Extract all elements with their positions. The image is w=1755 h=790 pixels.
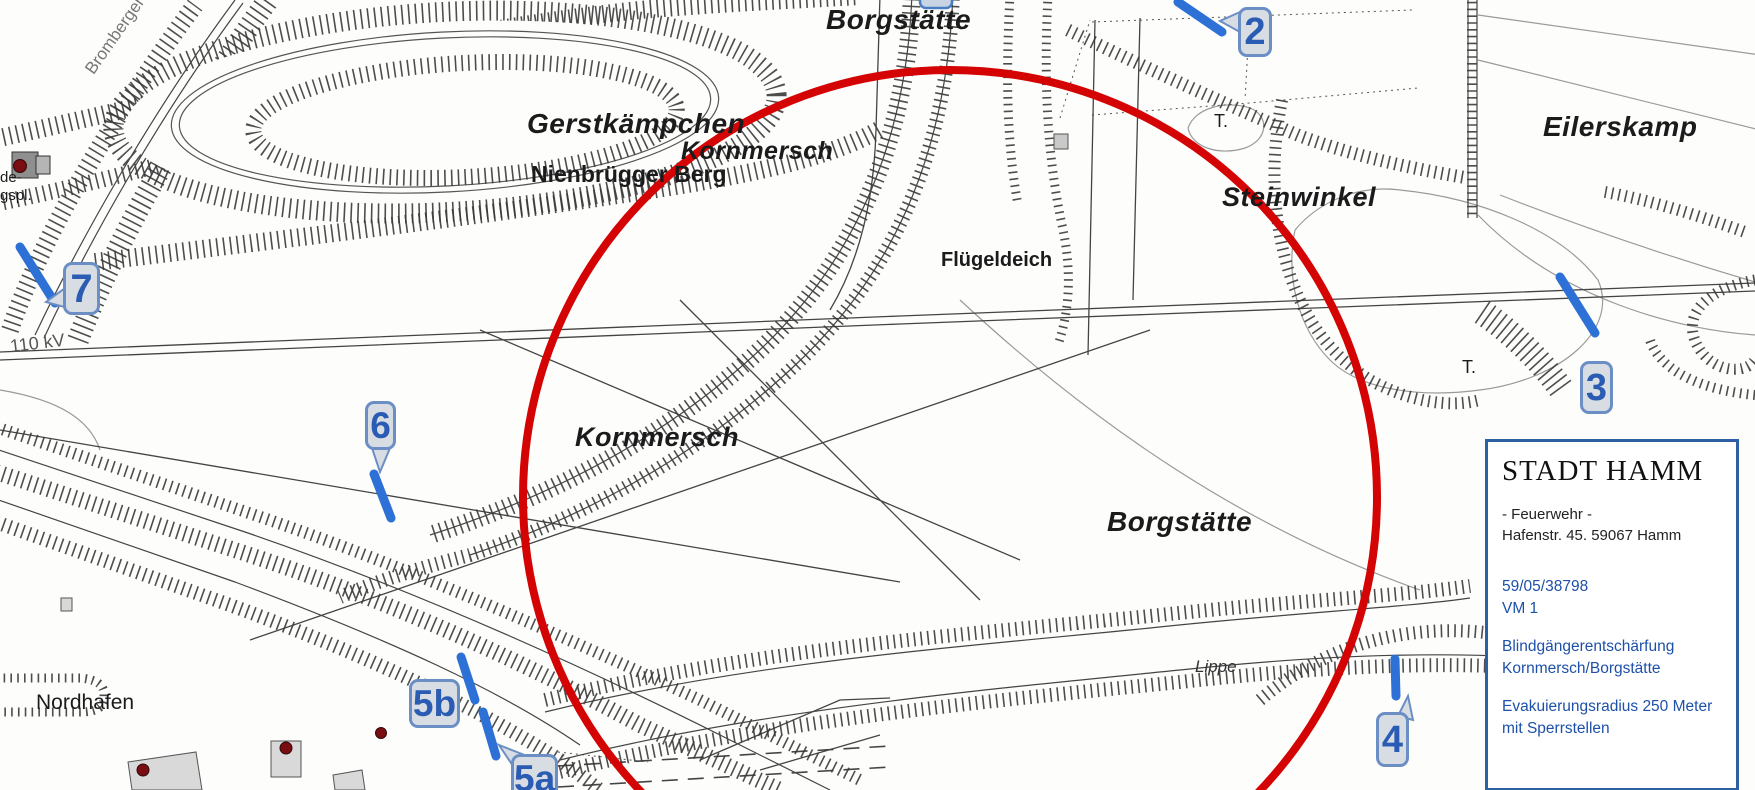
info-unit: VM 1 <box>1502 598 1722 620</box>
barrier-badge-3: 3 <box>1580 361 1613 414</box>
barrier-badge-2: 2 <box>1238 7 1272 57</box>
map-stage: Borgstätte Gerstkämpchen Kornmersch Nien… <box>0 0 1755 790</box>
info-case-number: 59/05/38798 <box>1502 576 1722 598</box>
label-fluegeldeich: Flügeldeich <box>941 250 1052 270</box>
label-eilerskamp: Eilerskamp <box>1543 113 1697 141</box>
info-address: Hafenstr. 45. 59067 Hamm <box>1502 525 1722 546</box>
info-title: STADT HAMM <box>1502 455 1722 488</box>
label-t-2: T. <box>1462 358 1476 376</box>
info-org: - Feuerwehr - <box>1502 504 1722 525</box>
building-marker-dot <box>280 742 292 754</box>
barrier-line-5a <box>483 712 496 756</box>
info-radius-2: mit Sperrstellen <box>1502 718 1722 740</box>
barrier-badge-5b: 5b <box>409 679 460 728</box>
label-borgstaette-mid: Borgstätte <box>1107 508 1252 536</box>
barrier-line-2 <box>1178 2 1222 32</box>
building-marker-dot <box>137 764 149 776</box>
info-operation-2: Kornmersch/Borgstätte <box>1502 658 1722 680</box>
barrier-badge-6: 6 <box>365 401 396 450</box>
label-t-1: T. <box>1214 112 1228 130</box>
label-fragment-de: de- <box>0 170 22 185</box>
info-box: STADT HAMM - Feuerwehr - Hafenstr. 45. 5… <box>1485 439 1739 790</box>
label-lippe: Lippe <box>1195 658 1237 675</box>
barrier-line-4 <box>1395 659 1396 696</box>
barrier-badge-7: 7 <box>63 262 100 315</box>
label-nordhafen: Nordhafen <box>36 692 134 713</box>
barrier-line-3 <box>1560 277 1595 333</box>
label-nienbruegger-berg: Nienbrügger Berg <box>531 163 727 186</box>
info-radius-1: Evakuierungsradius 250 Meter <box>1502 696 1722 718</box>
barrier-badge-4: 4 <box>1376 712 1409 767</box>
info-operation-1: Blindgängerentschärfung <box>1502 636 1722 658</box>
label-steinwinkel: Steinwinkel <box>1222 184 1376 211</box>
buildings <box>12 134 1068 790</box>
barrier-line-5b <box>461 657 475 700</box>
barrier-badge-5a: 5a <box>511 754 558 790</box>
label-borgstaette-top: Borgstätte <box>826 6 971 34</box>
label-fragment-gspl: gspl. <box>0 188 32 203</box>
building-marker-dot <box>376 728 387 739</box>
label-kornmersch-mid: Kornmersch <box>575 424 739 451</box>
barrier-line-7 <box>20 247 55 303</box>
label-gerstkaempchen: Gerstkämpchen <box>527 110 745 138</box>
